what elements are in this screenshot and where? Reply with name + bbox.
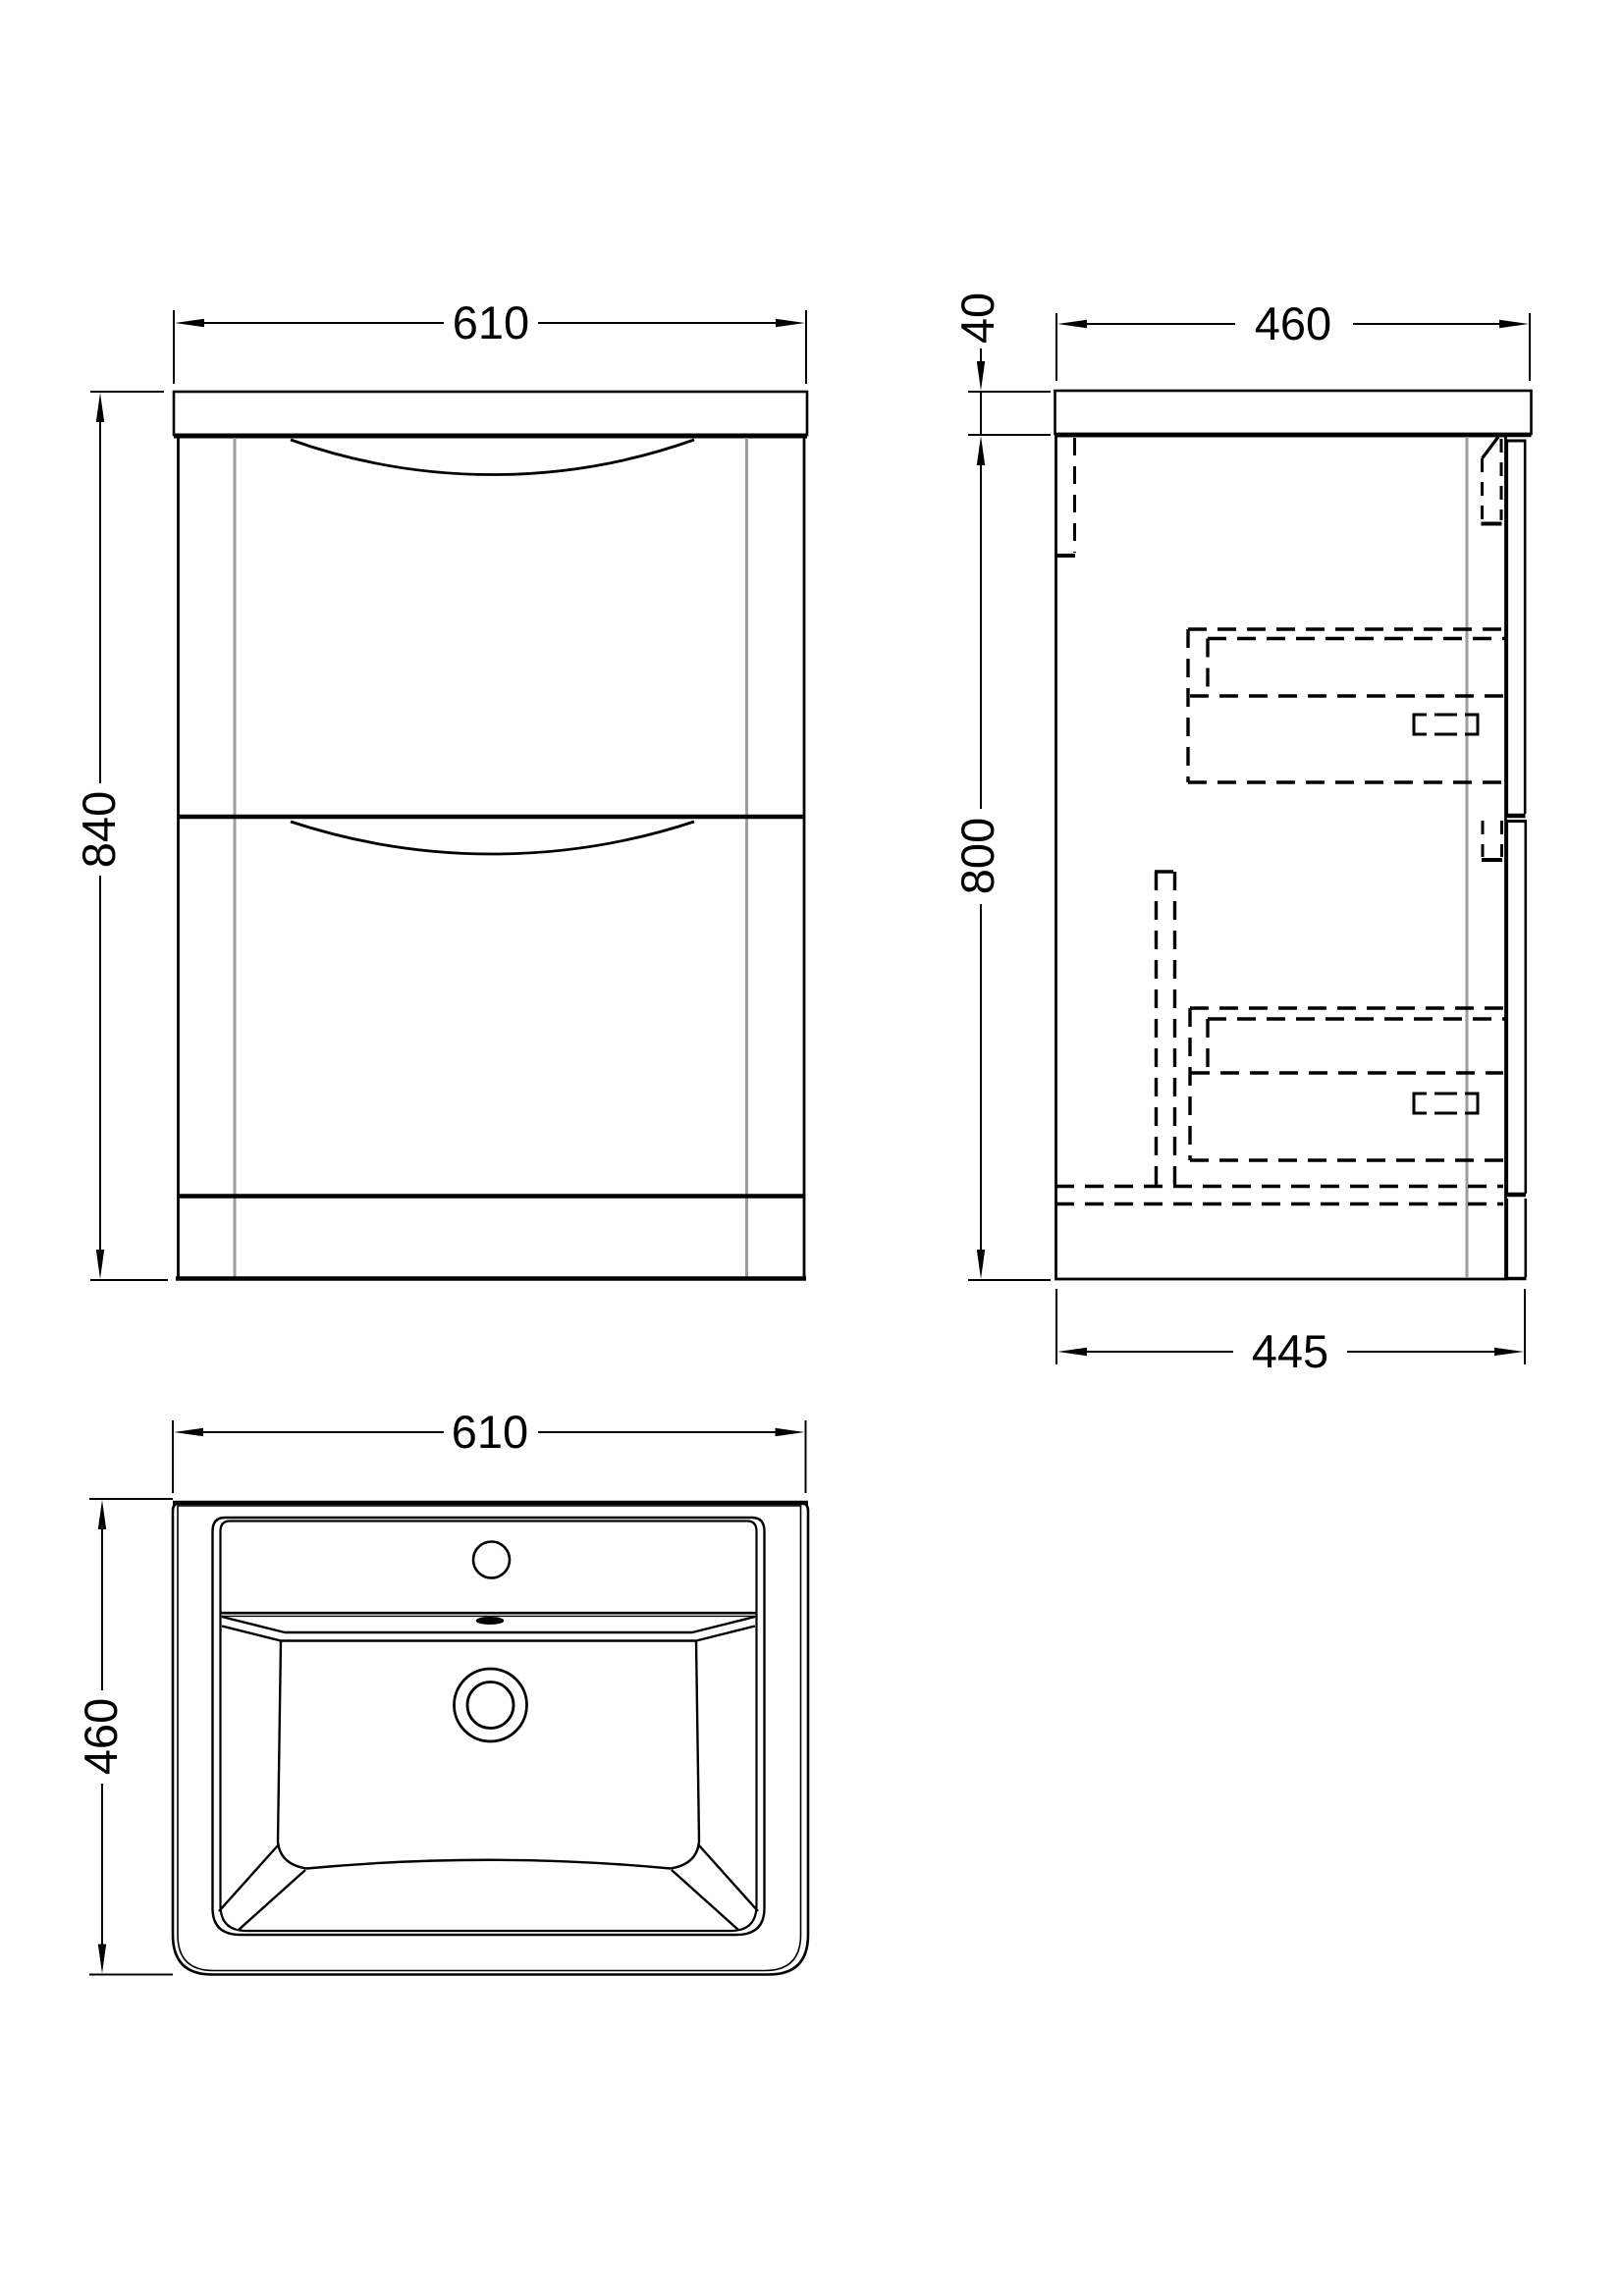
svg-text:40: 40 [951,293,1003,344]
svg-text:800: 800 [951,818,1003,894]
svg-text:460: 460 [75,1698,127,1775]
svg-text:460: 460 [1255,297,1331,349]
svg-text:610: 610 [452,1406,528,1458]
svg-text:840: 840 [73,791,125,868]
svg-text:445: 445 [1252,1325,1328,1377]
svg-text:610: 610 [453,296,529,348]
